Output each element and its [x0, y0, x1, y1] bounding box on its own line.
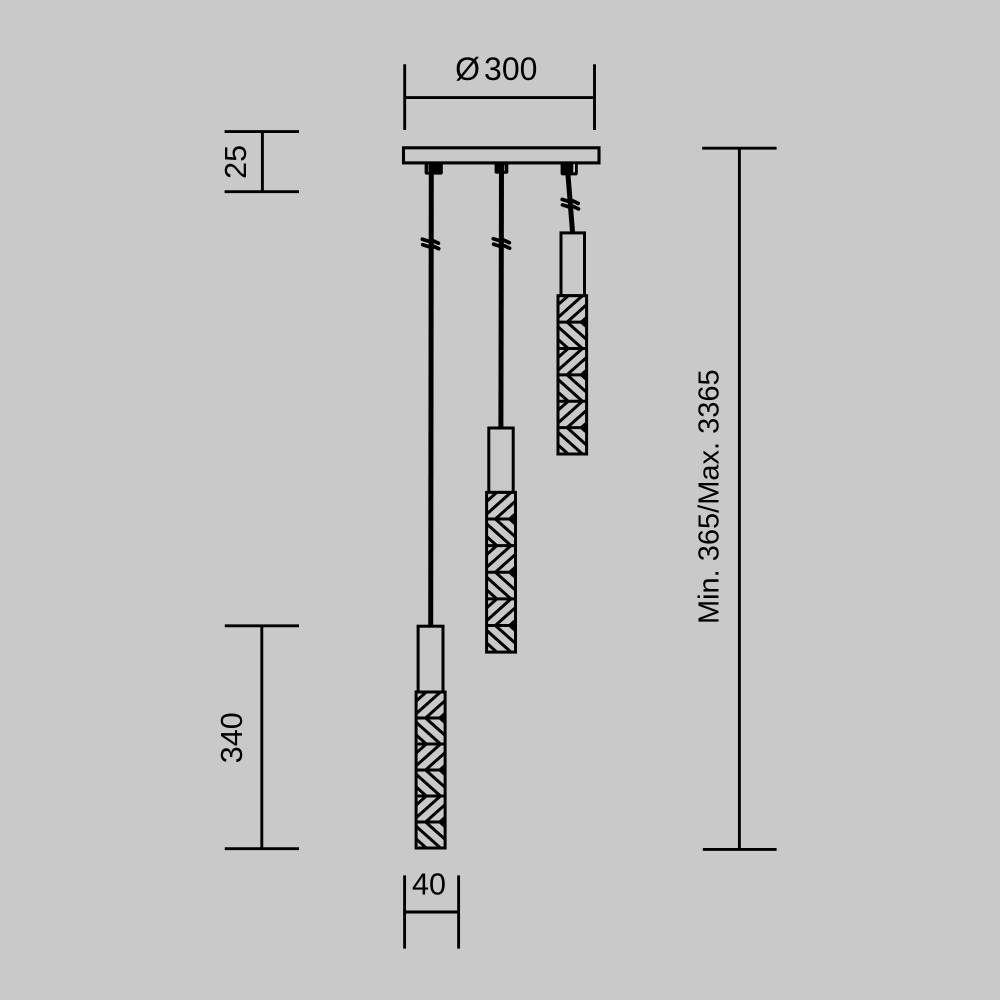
- svg-text:Ø300: Ø300: [455, 51, 537, 87]
- svg-text:Min. 365/Max. 3365: Min. 365/Max. 3365: [694, 369, 726, 624]
- svg-text:340: 340: [215, 712, 249, 763]
- svg-text:40: 40: [412, 867, 446, 901]
- svg-text:25: 25: [219, 145, 253, 179]
